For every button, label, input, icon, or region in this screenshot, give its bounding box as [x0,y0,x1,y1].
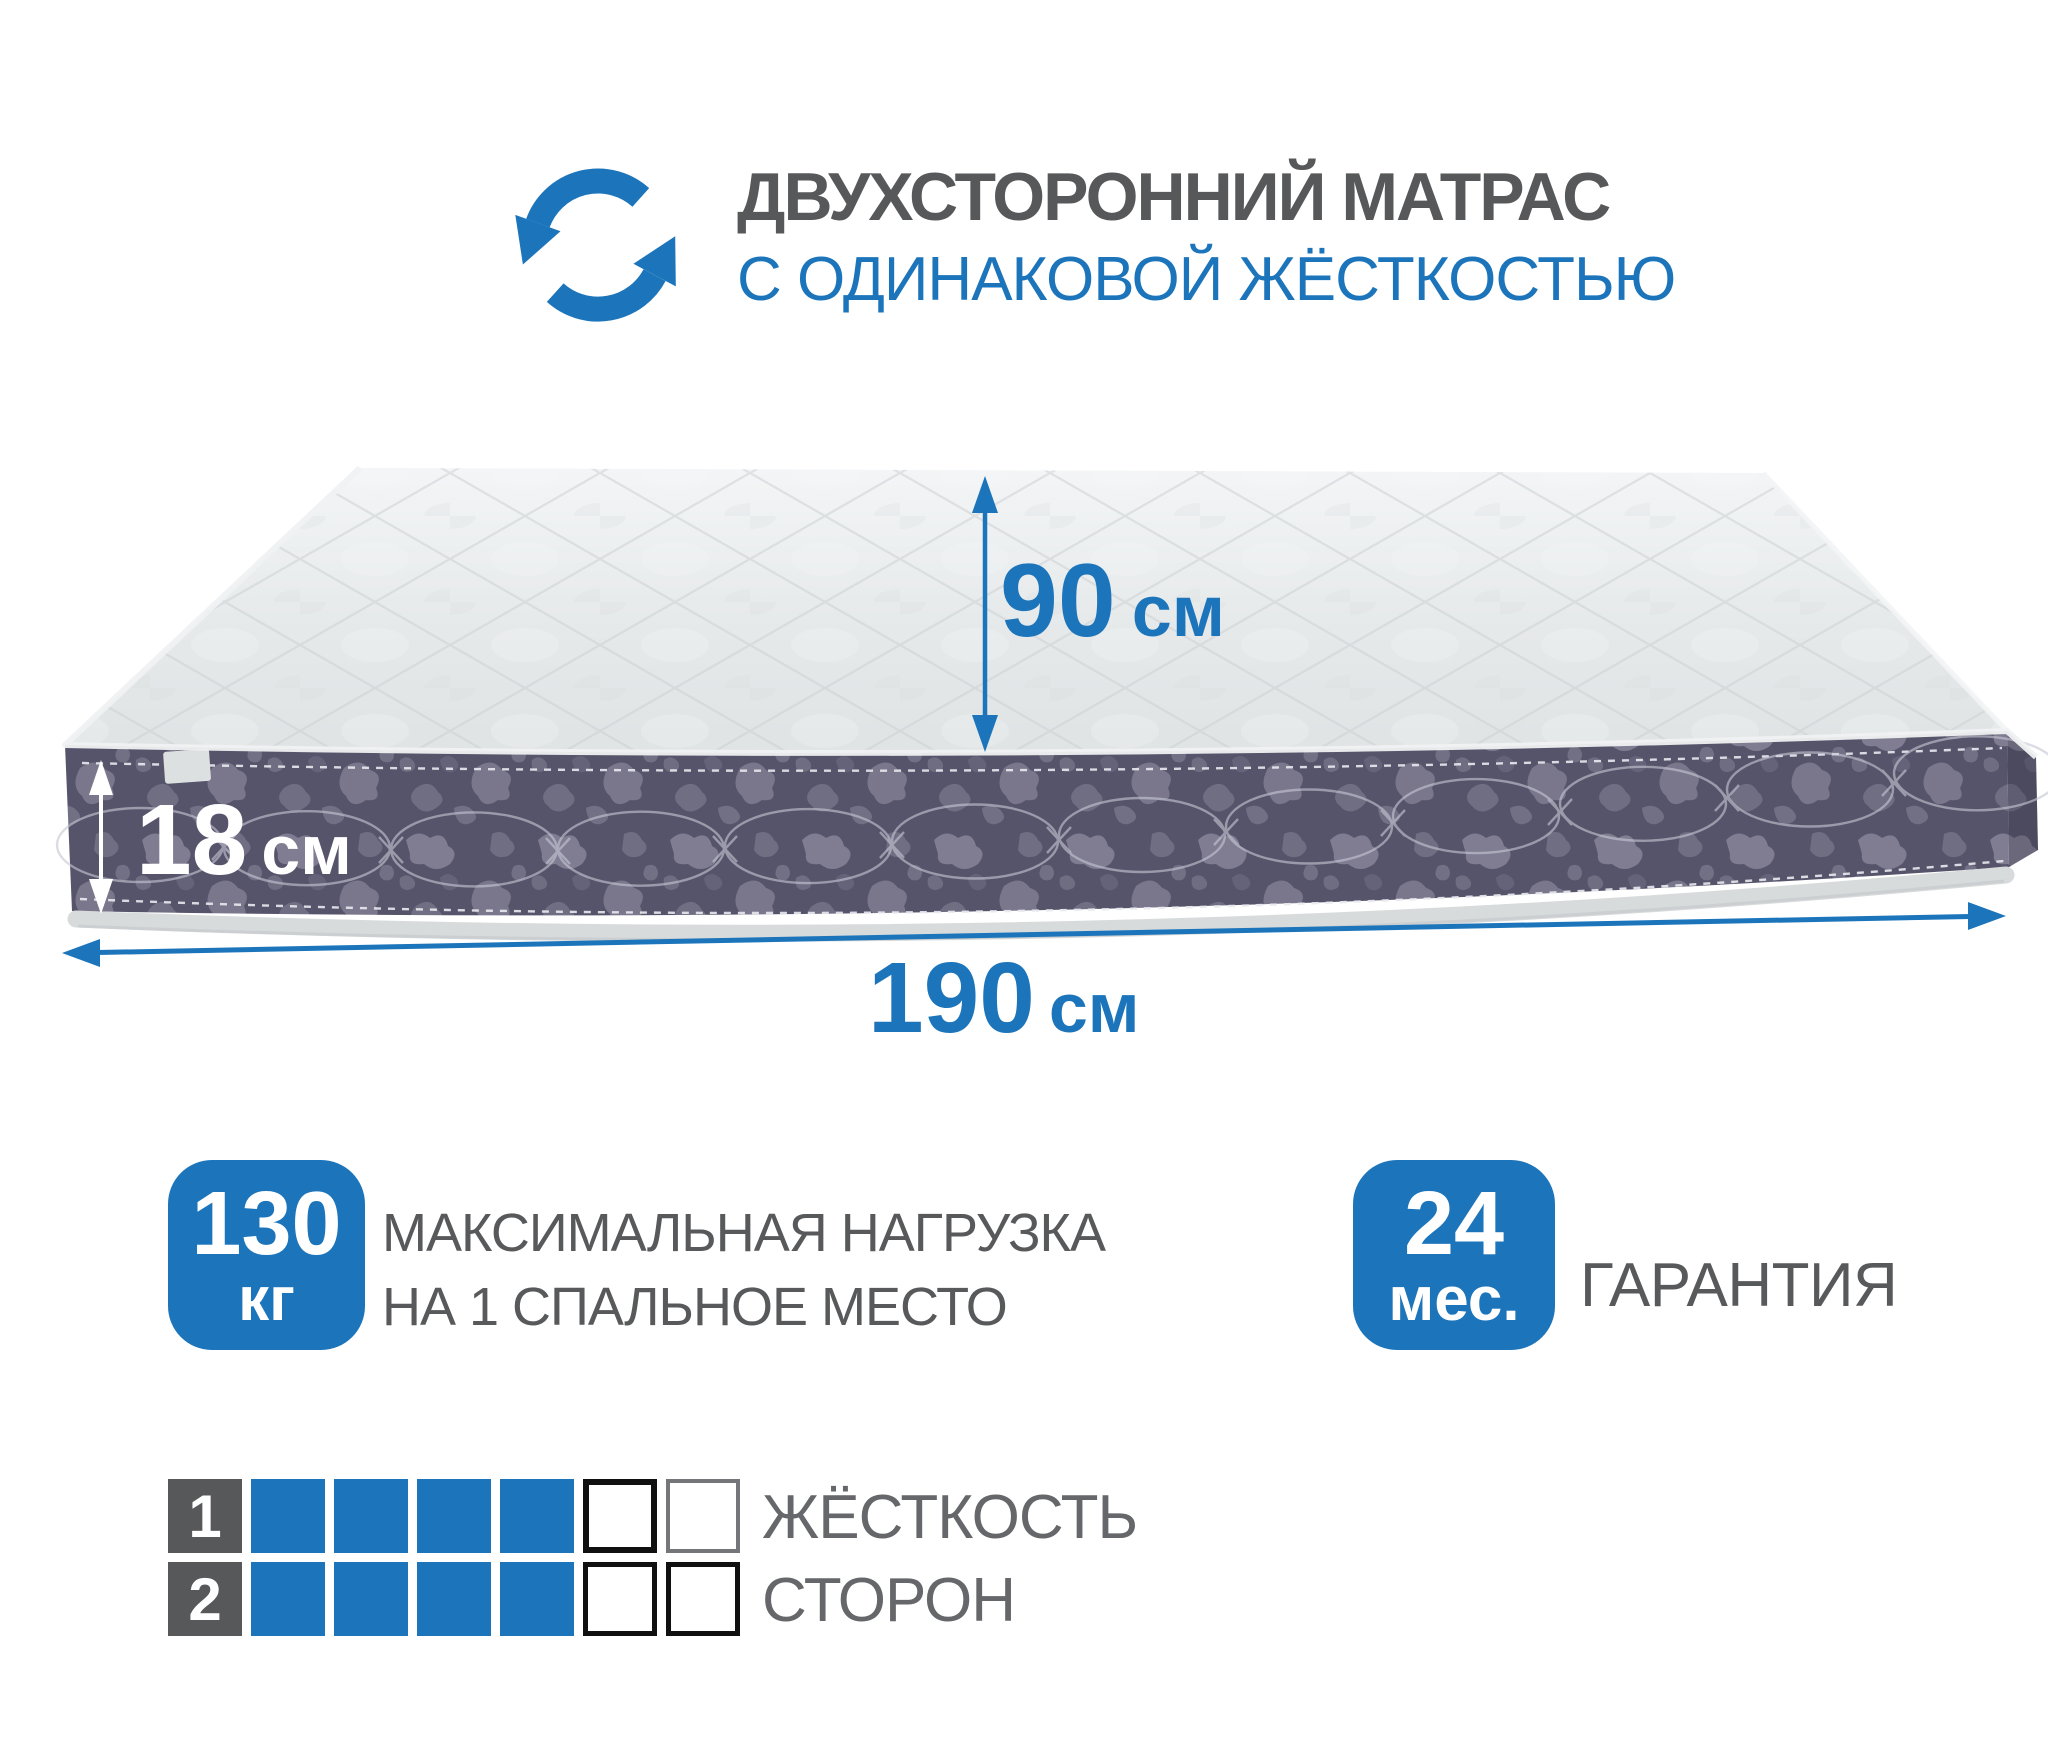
firmness-title-line2: СТОРОН [762,1559,1137,1642]
firmness-row-number: 2 [168,1562,242,1636]
firmness-cell-filled [334,1562,408,1636]
firmness-cell-empty [666,1562,740,1636]
firmness-cell-filled [334,1479,408,1553]
warranty-value: 24 [1404,1182,1504,1268]
surface-width-value: 90 [1000,549,1116,653]
fabric-tag [163,749,211,784]
warranty-unit: мес. [1388,1272,1519,1328]
max-load-line2: НА 1 СПАЛЬНОЕ МЕСТО [382,1270,1105,1344]
max-load-line1: МАКСИМАЛЬНАЯ НАГРУЗКА [382,1196,1105,1270]
max-load-badge: 130 кг [168,1160,365,1350]
surface-width-label: 90 см [1000,549,1225,653]
length-value: 190 [868,948,1035,1048]
max-load-value: 130 [191,1182,341,1268]
firmness-title: ЖЁСТКОСТЬ СТОРОН [762,1476,1137,1642]
firmness-row: 2 [168,1562,740,1636]
firmness-cell-filled [417,1562,491,1636]
firmness-row-number: 1 [168,1479,242,1553]
warranty-badge: 24 мес. [1353,1160,1555,1350]
thickness-value: 18 [136,790,247,890]
firmness-grid: 12 [168,1479,740,1636]
firmness-cell-filled [251,1479,325,1553]
firmness-cell-empty [666,1479,740,1553]
length-unit: см [1049,973,1140,1043]
rotate-arrows-icon [515,181,676,309]
length-label: 190 см [868,948,1140,1048]
firmness-cell-empty [583,1562,657,1636]
page-title: ДВУХСТОРОННИЙ МАТРАС [737,158,1609,236]
thickness-label: 18 см [136,790,352,890]
mattress-infographic: ДВУХСТОРОННИЙ МАТРАС С ОДИНАКОВОЙ ЖЁСТКО… [0,0,2048,1757]
firmness-cell-filled [500,1479,574,1553]
firmness-cell-filled [251,1562,325,1636]
firmness-title-line1: ЖЁСТКОСТЬ [762,1476,1137,1559]
thickness-unit: см [261,815,352,885]
max-load-description: МАКСИМАЛЬНАЯ НАГРУЗКА НА 1 СПАЛЬНОЕ МЕСТ… [382,1196,1105,1344]
firmness-cell-empty [583,1479,657,1553]
page-subtitle: С ОДИНАКОВОЙ ЖЁСТКОСТЬЮ [737,244,1675,315]
firmness-cell-filled [417,1479,491,1553]
firmness-cell-filled [500,1562,574,1636]
surface-width-unit: см [1132,576,1225,648]
mattress-side-face [57,731,2048,915]
firmness-row: 1 [168,1479,740,1553]
max-load-unit: кг [238,1272,295,1328]
warranty-label: ГАРАНТИЯ [1580,1250,1897,1321]
